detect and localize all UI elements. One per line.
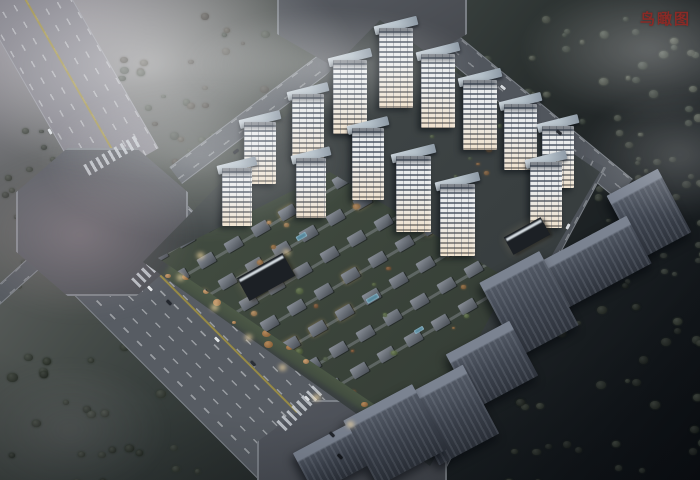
forest-tree (669, 157, 676, 162)
forest-tree (638, 62, 646, 69)
forest-tree (615, 465, 623, 471)
forest-tree (599, 78, 608, 85)
forest-tree (606, 219, 611, 223)
forest-tree (660, 253, 667, 258)
forest-tree (98, 452, 107, 459)
garden-tree (383, 313, 387, 316)
villa-house (349, 361, 369, 379)
tower-body (440, 184, 475, 256)
forest-tree (638, 133, 643, 137)
forest-tree (625, 379, 630, 383)
forest-tree (202, 103, 209, 108)
forest-tree (109, 447, 116, 453)
forest-tree (661, 269, 667, 274)
forest-tree (616, 130, 623, 135)
forest-tree (195, 469, 201, 474)
edge-tree (303, 359, 309, 364)
garden-tree (514, 393, 517, 395)
edge-tree (165, 274, 171, 279)
villa-house (217, 272, 237, 290)
forest-tree (674, 328, 682, 334)
ground-light (346, 421, 355, 428)
garden-tree (461, 285, 465, 288)
ground-light (210, 304, 219, 311)
villa-house (313, 282, 333, 300)
forest-tree (693, 394, 700, 401)
forest-tree (596, 381, 606, 389)
garden-tree (296, 288, 303, 294)
forest-tree (632, 304, 640, 310)
forest-tree (685, 120, 692, 126)
forest-tree (188, 60, 194, 64)
tower-body (421, 54, 455, 128)
villa-house (340, 266, 360, 284)
tower-body (296, 158, 326, 218)
garden-tree (251, 311, 258, 316)
forest-tree (22, 128, 29, 134)
villa-house (382, 308, 402, 326)
villa-house (415, 255, 435, 273)
forest-tree (639, 468, 645, 473)
site-tree (430, 135, 434, 138)
forest-tree (178, 137, 184, 142)
forest-tree (241, 42, 245, 45)
forest-tree (639, 356, 648, 364)
garden-tree (372, 283, 376, 286)
forest-tree (661, 338, 671, 346)
tower-body (352, 128, 384, 200)
forest-tree (635, 161, 640, 165)
garden-tree (464, 314, 469, 318)
forest-tree (516, 399, 525, 406)
forest-tree (156, 390, 166, 398)
forest-tree (532, 449, 541, 456)
forest-tree (685, 106, 693, 112)
villa-house (463, 260, 483, 278)
villa-house (325, 208, 345, 226)
forest-tree (600, 31, 609, 38)
forest-tree (26, 167, 33, 172)
villa-house (388, 271, 408, 289)
residential-tower (352, 128, 384, 200)
forest-tree (644, 169, 648, 172)
residential-tower (530, 162, 562, 228)
forest-tree (125, 445, 133, 452)
forest-tree (580, 40, 584, 43)
forest-tree (5, 175, 12, 180)
villa-house (346, 229, 366, 247)
ground-light (312, 394, 321, 401)
forest-tree (636, 157, 642, 162)
forest-tree (78, 452, 85, 458)
tower-body (463, 80, 497, 150)
forest-tree (9, 188, 15, 193)
tower-body (222, 168, 252, 226)
forest-tree (689, 448, 697, 455)
forest-tree (562, 46, 570, 52)
forest-tree (9, 453, 15, 458)
forest-tree (261, 31, 270, 38)
villa-house (436, 276, 456, 294)
forest-tree (695, 258, 700, 263)
residential-tower (440, 184, 475, 256)
garden-tree (314, 304, 318, 307)
forest-tree (202, 86, 208, 91)
garden-tree (391, 351, 397, 356)
site-tree (468, 157, 472, 160)
forest-tree (7, 373, 18, 382)
site-tree (484, 171, 489, 175)
forest-tree (622, 283, 628, 288)
villa-house (307, 319, 327, 337)
forest-tree (545, 444, 552, 450)
garden-tree (351, 350, 354, 353)
forest-tree (41, 145, 47, 150)
forest-tree (24, 354, 33, 361)
forest-tree (696, 340, 700, 347)
forest-tree (63, 400, 69, 405)
forest-tree (564, 29, 570, 34)
villa-house (292, 261, 312, 279)
forest-tree (632, 77, 640, 83)
villa-house (373, 213, 393, 231)
villa-house (367, 250, 387, 268)
forest-tree (32, 420, 41, 427)
villa-house (355, 324, 375, 342)
forest-tree (696, 180, 700, 186)
forest-tree (43, 358, 52, 365)
forest-tree (101, 410, 109, 416)
forest-tree (682, 181, 690, 188)
forest-tree (695, 242, 700, 248)
forest-tree (511, 449, 518, 455)
forest-tree (201, 13, 210, 20)
villa-house (286, 298, 306, 316)
forest-tree (579, 119, 585, 124)
ground-light (278, 364, 287, 371)
forest-tree (172, 466, 180, 472)
forest-tree (136, 450, 143, 456)
forest-tree (653, 159, 661, 165)
garden-tree (323, 357, 328, 361)
residential-tower (396, 156, 431, 232)
forest-tree (689, 86, 697, 93)
ground-light (244, 334, 253, 341)
forest-tree (2, 192, 10, 198)
residential-tower (463, 80, 497, 150)
site-tree (498, 124, 502, 128)
site-tree (476, 163, 479, 166)
forest-tree (222, 33, 228, 37)
forest-tree (543, 92, 550, 97)
villa-house (409, 292, 429, 310)
forest-tree (39, 130, 44, 134)
garden-tree (452, 327, 455, 329)
forest-tree (626, 76, 630, 79)
villa-house (394, 234, 414, 252)
villa-house (457, 297, 477, 315)
forest-tree (597, 306, 607, 314)
garden-tree (284, 223, 289, 227)
villa-house (328, 340, 348, 358)
forest-tree (575, 447, 582, 453)
forest-tree (536, 403, 544, 409)
forest-tree (120, 57, 128, 63)
forest-tree (632, 29, 639, 35)
garden-tree (386, 267, 391, 271)
forest-tree (688, 174, 694, 179)
forest-tree (690, 426, 699, 433)
forest-tree (650, 401, 661, 409)
forest-tree (671, 45, 678, 50)
forest-tree (659, 51, 668, 58)
forest-tree (673, 318, 682, 325)
ground-light (196, 252, 205, 259)
ground-light (176, 274, 185, 281)
forest-tree (152, 122, 157, 126)
garden-tree (513, 411, 519, 416)
forest-tree (595, 196, 602, 202)
tower-body (379, 28, 413, 108)
forest-tree (40, 371, 49, 378)
forest-tree (224, 28, 230, 33)
view-label: 鸟瞰图 (640, 8, 691, 29)
forest-tree (88, 358, 95, 363)
residential-tower (222, 168, 252, 226)
fog-patch (0, 360, 170, 480)
forest-tree (563, 441, 571, 448)
forest-tree (623, 17, 628, 21)
forest-tree (694, 114, 700, 122)
villa-house (277, 203, 297, 221)
forest-tree (649, 90, 659, 98)
forest-tree (222, 48, 230, 54)
forest-tree (170, 445, 178, 451)
forest-tree (670, 38, 678, 44)
forest-tree (612, 441, 620, 447)
forest-tree (672, 272, 677, 276)
forest-tree (145, 105, 153, 111)
forest-tree (87, 411, 95, 418)
forest-tree (140, 60, 148, 66)
forest-tree (542, 16, 551, 23)
edge-tree (264, 341, 273, 348)
forest-tree (625, 142, 633, 148)
forest-tree (529, 56, 535, 60)
car (233, 148, 240, 154)
birdseye-rendering: 鸟瞰图 (0, 0, 700, 480)
residential-tower (296, 158, 326, 218)
tower-body (396, 156, 431, 232)
forest-tree (632, 379, 641, 386)
villa-house (223, 235, 243, 253)
villa-house (334, 303, 354, 321)
residential-tower (379, 28, 413, 108)
forest-tree (120, 67, 129, 74)
tower-body (530, 162, 562, 228)
forest-tree (187, 103, 194, 109)
villa-house (430, 313, 450, 331)
forest-tree (614, 115, 621, 121)
residential-tower (421, 54, 455, 128)
villa-house (319, 245, 339, 263)
forest-tree (137, 70, 145, 76)
forest-tree (161, 95, 166, 99)
